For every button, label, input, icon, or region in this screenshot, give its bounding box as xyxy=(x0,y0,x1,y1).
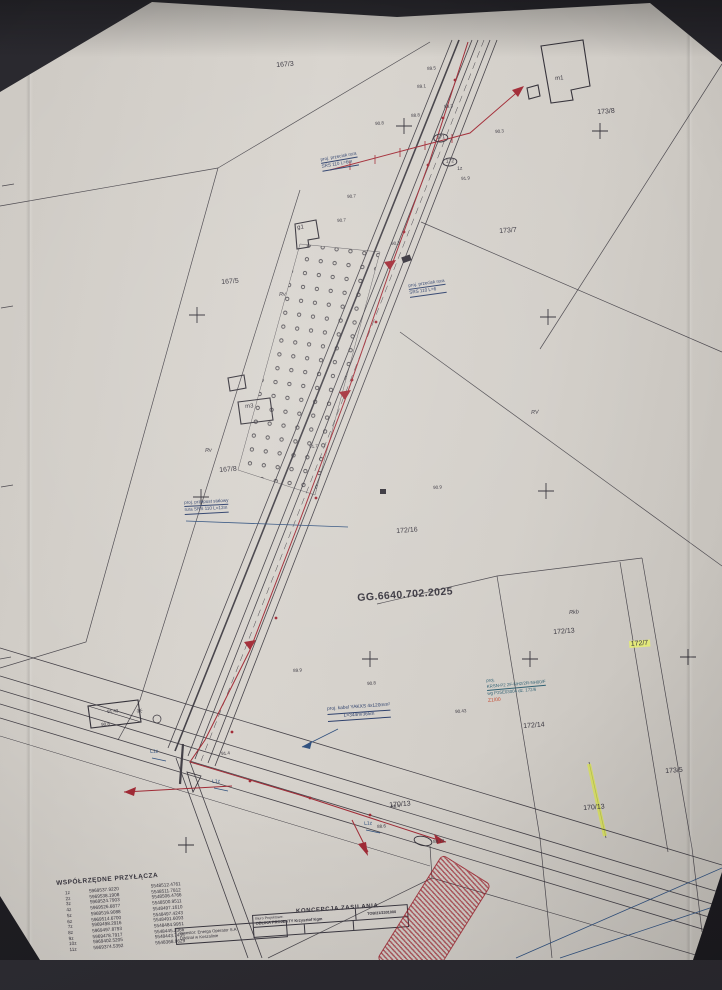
map-label: 91.9 xyxy=(461,176,470,181)
map-label: 90.9 xyxy=(433,485,442,490)
map-label: L1z xyxy=(364,821,372,827)
map-label: 89.3 xyxy=(444,104,453,109)
map-label: 173/7 xyxy=(499,227,517,235)
map-label: 172/16 xyxy=(396,527,418,535)
map-label: 172/13 xyxy=(553,628,575,636)
photographed-survey-map: { "colors":{"ink":"#35323a","red":"#a22b… xyxy=(0,0,722,960)
map-label: Rv xyxy=(279,293,286,299)
map-label: L1z xyxy=(212,779,220,785)
map-label: 91.43 xyxy=(107,709,119,714)
map-label: g1 xyxy=(297,225,304,231)
map-label: 90.8 xyxy=(101,722,110,727)
map-label: ✳ xyxy=(136,708,143,716)
map-label: 170/13 xyxy=(583,804,605,812)
map-label: 90.8 xyxy=(367,681,376,686)
map-labels-layer: 167/3173/8173/7167/5167/8172/16172/13172… xyxy=(0,0,722,960)
map-label: 91.7 xyxy=(309,444,318,449)
map-label: 89.5 xyxy=(427,66,436,71)
map-label: 173/8 xyxy=(597,108,615,116)
map-label: 167/5 xyxy=(221,278,239,286)
map-label: 89.9 xyxy=(293,668,302,673)
paper-sheet: 167/3173/8173/7167/5167/8172/16172/13172… xyxy=(0,0,722,960)
map-label: m3 xyxy=(245,403,254,410)
map-label: m1 xyxy=(555,75,564,82)
map-label: Rv xyxy=(205,449,212,455)
map-label: 1z xyxy=(457,167,463,172)
map-label: GG.6640.702.2025 xyxy=(357,586,453,603)
map-label: L1z xyxy=(150,749,158,755)
map-label: 88.6 xyxy=(377,824,386,829)
map-photo: 167/3173/8173/7167/5167/8172/16172/13172… xyxy=(0,0,722,960)
map-label: 167/8 xyxy=(219,466,237,474)
map-label: 88.8 xyxy=(411,113,420,118)
map-label: 90.7 xyxy=(347,194,356,199)
annotation-zlacze: proj. KRSN-P2 2F-NH2/2R-NH00/F wg P25E03… xyxy=(486,673,547,704)
annotation-przepust: proj. przepust stalowy rura SRS 110 L=12… xyxy=(184,498,229,515)
map-label: Rkb xyxy=(569,610,579,616)
map-label: 172 xyxy=(442,157,458,167)
map-label: 172/14 xyxy=(523,722,545,730)
map-label: 90.43 xyxy=(455,709,467,714)
map-label: 90.3 xyxy=(495,129,504,134)
map-label: 167/3 xyxy=(276,61,294,69)
map-label: 173/5 xyxy=(665,767,683,775)
map-label: RV xyxy=(531,410,539,416)
map-label: 88.4 xyxy=(391,804,400,809)
map-label: 90.3 xyxy=(391,241,400,246)
map-label: 90.7 xyxy=(337,218,346,223)
map-label: 172/7 xyxy=(629,640,650,648)
map-label: 90.8 xyxy=(375,121,384,126)
map-label: 91.4 xyxy=(221,751,230,756)
map-label: 88.73 xyxy=(433,839,445,844)
map-label: 89.1 xyxy=(417,84,426,89)
map-label: 171 xyxy=(433,133,449,143)
